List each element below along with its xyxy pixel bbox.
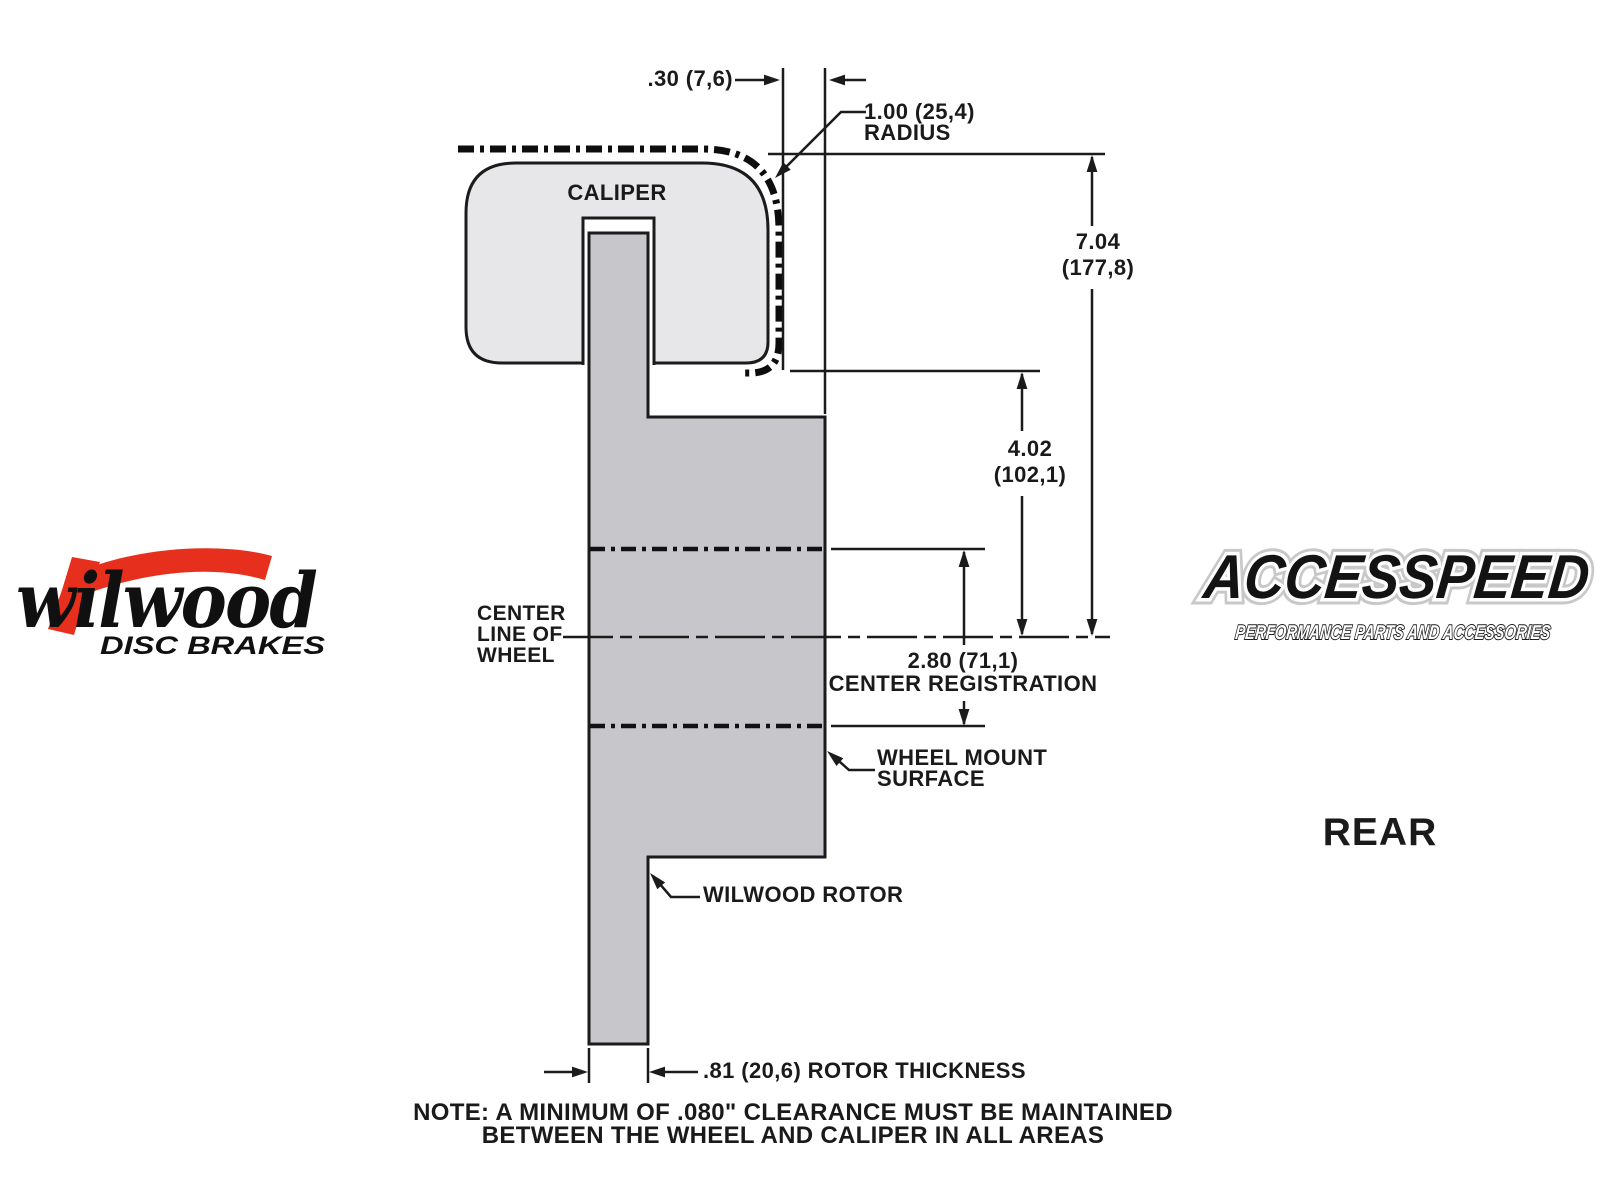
registration-dimension: 2.80 (71,1) bbox=[908, 650, 1019, 672]
arrow-81-left-icon bbox=[649, 1067, 665, 1078]
radius-word: RADIUS bbox=[864, 122, 975, 143]
registration-label: CENTER REGISTRATION bbox=[829, 673, 1098, 695]
radius-dimension: 1.00 (25,4) bbox=[864, 101, 975, 122]
centerline-label: CENTER LINE OF WHEEL bbox=[477, 603, 566, 666]
wheel-mount-line1: WHEEL MOUNT bbox=[877, 747, 1047, 768]
rotor-thickness-dimension: .81 (20,6) ROTOR THICKNESS bbox=[703, 1060, 1026, 1082]
clearance-note: NOTE: A MINIMUM OF .080" CLEARANCE MUST … bbox=[413, 1101, 1173, 1147]
accesspeed-wordmark: ACCESSPEED bbox=[1199, 543, 1593, 612]
note-line1: NOTE: A MINIMUM OF .080" CLEARANCE MUST … bbox=[413, 1101, 1173, 1124]
arrow-704-up-icon bbox=[1087, 155, 1098, 172]
wilwood-subtitle: DISC BRAKES bbox=[100, 632, 325, 660]
arrow-704-down-icon bbox=[1087, 619, 1098, 636]
arrow-402-up-icon bbox=[1017, 372, 1028, 389]
caliper-label: CALIPER bbox=[567, 182, 666, 204]
wilwood-logo: wilwood DISC BRAKES bbox=[12, 530, 332, 662]
wilwood-logo-art: wilwood DISC BRAKES bbox=[12, 530, 332, 662]
overall-height-in: 7.04 bbox=[1062, 229, 1135, 255]
arrow-clearance-left-icon bbox=[829, 75, 845, 86]
wheel-mount-label: WHEEL MOUNT SURFACE bbox=[877, 747, 1047, 789]
arrow-280-down-icon bbox=[959, 709, 970, 726]
centerline-line2: LINE OF bbox=[477, 624, 566, 645]
arrow-clearance-right-icon bbox=[764, 75, 780, 86]
arrow-280-up-icon bbox=[959, 550, 970, 567]
arrow-81-right-icon bbox=[572, 1067, 588, 1078]
diagram-canvas: .30 (7,6) 1.00 (25,4) RADIUS CALIPER 7.0… bbox=[0, 0, 1600, 1200]
wheel-mount-line2: SURFACE bbox=[877, 768, 1047, 789]
view-label: REAR bbox=[1323, 822, 1438, 844]
mount-height-in: 4.02 bbox=[994, 436, 1067, 462]
arrow-402-down-icon bbox=[1017, 619, 1028, 636]
leader-radius bbox=[778, 112, 866, 175]
centerline-line3: WHEEL bbox=[477, 645, 566, 666]
mount-height-dimension: 4.02 (102,1) bbox=[994, 436, 1067, 488]
centerline-line1: CENTER bbox=[477, 603, 566, 624]
rotor-callout: WILWOOD ROTOR bbox=[703, 884, 903, 906]
overall-height-mm: (177,8) bbox=[1062, 255, 1135, 281]
note-line2: BETWEEN THE WHEEL AND CALIPER IN ALL ARE… bbox=[413, 1124, 1173, 1147]
accesspeed-subtitle: PERFORMANCE PARTS AND ACCESSORIES bbox=[1234, 622, 1552, 644]
radius-callout: 1.00 (25,4) RADIUS bbox=[864, 101, 975, 143]
overall-height-dimension: 7.04 (177,8) bbox=[1062, 229, 1135, 281]
accesspeed-logo: ACCESSPEED ACCESSPEED PERFORMANCE PARTS … bbox=[1190, 518, 1600, 658]
accesspeed-logo-art: ACCESSPEED ACCESSPEED PERFORMANCE PARTS … bbox=[1190, 518, 1600, 658]
mount-height-mm: (102,1) bbox=[994, 462, 1067, 488]
clearance-dimension: .30 (7,6) bbox=[647, 68, 733, 90]
